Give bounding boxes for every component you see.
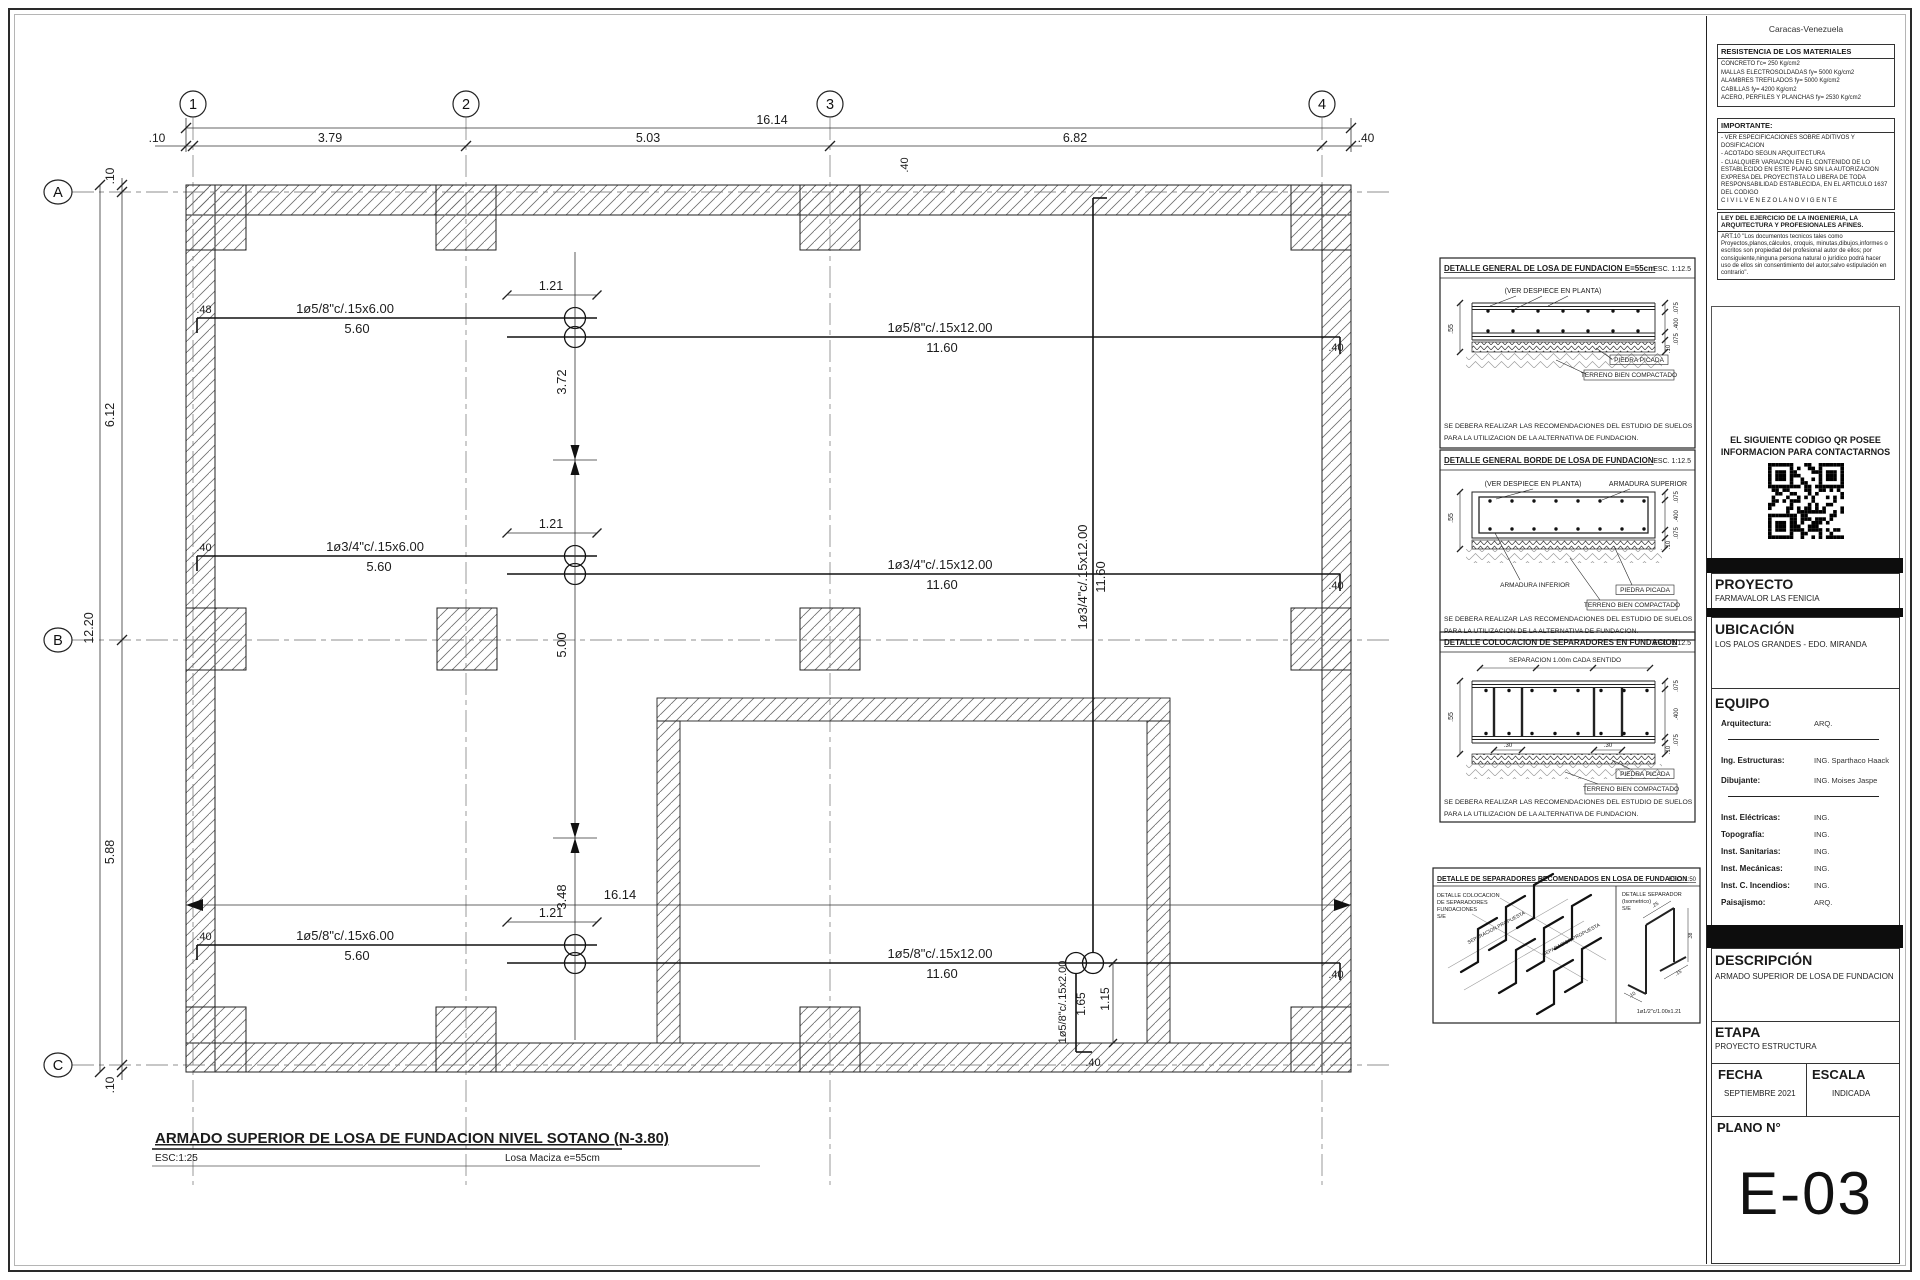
grid-bubble-label: 3 — [826, 97, 834, 113]
dim-label: .10 — [1628, 991, 1637, 1000]
importante-lines: - VER ESPECIFICACIONES SOBRE ADITIVOS Y … — [1718, 133, 1894, 209]
floor-plan-drawing: 1234ABC ARMADO SUPERIOR DE LOSA DE FUNDA… — [0, 0, 1920, 1280]
dim-label: 1.21 — [539, 279, 563, 293]
title-block: Caracas-Venezuela RESISTENCIA DE LOS MAT… — [1706, 16, 1905, 1264]
dim-label: .48 — [196, 304, 211, 316]
proyecto-label: PROYECTO — [1715, 576, 1902, 592]
importante-box: IMPORTANTE: - VER ESPECIFICACIONES SOBRE… — [1717, 118, 1895, 210]
fecha-escala-divider — [1806, 1064, 1807, 1117]
equipo-row-value: ING. — [1814, 847, 1829, 856]
dim-label: .15 — [1674, 969, 1683, 978]
equipo-row-label: Paisajismo: — [1721, 898, 1765, 907]
rebar-callout: 1ø5/8"c/.15x12.00 — [887, 946, 992, 961]
qr-caption-2: INFORMACION PARA CONTACTARNOS — [1712, 447, 1899, 457]
equipo-row-value: ING. — [1814, 813, 1829, 822]
descripcion-value: ARMADO SUPERIOR DE LOSA DE FUNDACION — [1715, 972, 1902, 981]
detail-scale: ESC. 1:12.5 — [1653, 266, 1691, 273]
fecha-escala-box: FECHA SEPTIEMBRE 2021 ESCALA INDICADA — [1711, 1063, 1900, 1118]
detail-title: DETALLE DE SEPARADORES RECOMENDADOS EN L… — [1437, 876, 1687, 883]
escala-value: INDICADA — [1832, 1089, 1870, 1098]
plano-label: PLANO N° — [1717, 1120, 1781, 1135]
equipo-row-label: Topografía: — [1721, 830, 1764, 839]
dim-label: .40 — [1358, 131, 1375, 145]
detail-label: FUNDACIONES — [1437, 907, 1477, 913]
title-block-city: Caracas-Venezuela — [1707, 24, 1905, 34]
text-line: C I V I L V E N E Z O L A N O V I G E N … — [1721, 198, 1891, 206]
rebar-callout: 1ø3/4"c/.15x12.00 — [1075, 524, 1090, 629]
rebar-callout: 5.60 — [366, 559, 391, 574]
dim-label: .40 — [1328, 580, 1343, 592]
dim-label: .075 — [1674, 734, 1680, 746]
grid-bubble-label: A — [53, 185, 63, 201]
detail-label: TERRENO BIEN COMPACTADO — [1583, 786, 1679, 793]
text-line: ACERO, PERFILES Y PLANCHAS fy= 2530 Kg/c… — [1721, 95, 1891, 103]
ley-header: LEY DEL EJERCICIO DE LA INGENIERIA, LA A… — [1718, 213, 1894, 232]
dim-label: 1.15 — [1098, 987, 1112, 1011]
divider-bar — [1707, 925, 1903, 948]
plan-title: ARMADO SUPERIOR DE LOSA DE FUNDACION NIV… — [155, 1130, 669, 1147]
drawing-sheet: 1234ABC ARMADO SUPERIOR DE LOSA DE FUNDA… — [0, 0, 1920, 1280]
detail-label: PIEDRA PICADA — [1620, 771, 1671, 778]
grid-bubble-label: 2 — [462, 97, 470, 113]
detail-label: ARMADURA SUPERIOR — [1609, 481, 1687, 488]
plan-slab-note: Losa Maciza e=55cm — [505, 1153, 600, 1164]
qr-code — [1768, 463, 1844, 539]
ley-box: LEY DEL EJERCICIO DE LA INGENIERIA, LA A… — [1717, 212, 1895, 280]
escala-label: ESCALA — [1812, 1067, 1865, 1082]
grid-bubble-label: 1 — [189, 97, 197, 113]
detail-label: S/E — [1437, 914, 1446, 920]
dim-label: 3.48 — [554, 884, 569, 909]
materials-header: RESISTENCIA DE LOS MATERIALES — [1718, 45, 1894, 59]
equipo-row-label: Arquitectura: — [1721, 719, 1771, 728]
equipo-box: EQUIPO Arquitectura:ARQ.Ing. Estructuras… — [1711, 688, 1900, 927]
dim-label: .55 — [1448, 712, 1455, 722]
detail-note: PARA LA UTILIZACION DE LA ALTERNATIVA DE… — [1444, 811, 1638, 818]
dim-label: 16.14 — [604, 887, 637, 902]
equipo-row-label: Inst. Mecánicas: — [1721, 864, 1783, 873]
detail-scale: ESC. 1:12.5 — [1653, 458, 1691, 465]
rebar-callout: 1ø5/8"c/.15x6.00 — [296, 301, 394, 316]
rebar-callout: 1ø5/8"c/.15x12.00 — [887, 320, 992, 335]
dim-label: 5.03 — [636, 131, 660, 145]
equipo-rule — [1728, 796, 1879, 797]
ubicacion-box: UBICACIÓN LOS PALOS GRANDES - EDO. MIRAN… — [1711, 617, 1900, 690]
dim-label: 12.20 — [82, 612, 96, 643]
detail-losa-fundacion — [1440, 258, 1695, 448]
grid-bubble-label: 4 — [1318, 97, 1326, 113]
rebar-callout: 11.60 — [926, 577, 958, 592]
descripcion-box: DESCRIPCIÓN ARMADO SUPERIOR DE LOSA DE F… — [1711, 948, 1900, 1023]
detail-label: TERRENO BIEN COMPACTADO — [1584, 602, 1680, 609]
dim-label: .075 — [1674, 491, 1680, 503]
dim-label: .400 — [1674, 708, 1680, 720]
proyecto-box: PROYECTO FARMAVALOR LAS FENICIA — [1711, 573, 1900, 610]
detail-label: SEPARACION 1.00m CADA SENTIDO — [1509, 657, 1621, 664]
detail-note: PARA LA UTILIZACION DE LA ALTERNATIVA DE… — [1444, 628, 1638, 635]
equipo-label: EQUIPO — [1715, 695, 1902, 711]
equipo-rule — [1728, 739, 1879, 740]
dim-label: 1.65 — [1074, 992, 1088, 1016]
dim-label: .10 — [149, 131, 166, 145]
drawing-labels: ARMADO SUPERIOR DE LOSA DE FUNDACION NIV… — [82, 113, 1697, 1164]
plano-box: PLANO N° E-03 — [1711, 1116, 1900, 1264]
grid-bubble-label: B — [53, 633, 63, 649]
text-line: CONCRETO f'c= 250 Kg/cm2 — [1721, 61, 1891, 69]
rebar-callout: 1ø5/8"c/.15x2.00 — [1057, 961, 1069, 1044]
detail-note: SE DEBERA REALIZAR LAS RECOMENDACIONES D… — [1444, 423, 1693, 430]
detail-label: PIEDRA PICADA — [1614, 357, 1665, 364]
dim-label: .40 — [196, 931, 211, 943]
dim-label: .30 — [1504, 743, 1513, 749]
detail-scale: ESC. 1:12.5 — [1653, 640, 1691, 647]
detail-label: S/E — [1622, 906, 1631, 912]
detail-label: PIEDRA PICADA — [1620, 587, 1671, 594]
plan-scale: ESC:1:25 — [155, 1153, 198, 1164]
dim-label: .40 — [196, 542, 211, 554]
detail-label: TERRENO BIEN COMPACTADO — [1581, 372, 1677, 379]
equipo-row-label: Ing. Estructuras: — [1721, 756, 1785, 765]
detail-label: DETALLE COLOCACION — [1437, 893, 1500, 899]
dim-label: .10 — [1666, 540, 1672, 549]
dim-label: .10 — [1666, 745, 1672, 754]
qr-caption-1: EL SIGUIENTE CODIGO QR POSEE — [1712, 435, 1899, 445]
equipo-row-value: ING. — [1814, 830, 1829, 839]
rebar-callout: 11.60 — [926, 340, 958, 355]
rebar-callout: 5.60 — [344, 948, 369, 963]
dim-label: 5.00 — [554, 632, 569, 657]
rebar-callout: 11.60 — [926, 966, 958, 981]
detail-note: SE DEBERA REALIZAR LAS RECOMENDACIONES D… — [1444, 799, 1693, 806]
detail-label: DETALLE SEPARADOR — [1622, 892, 1682, 898]
dim-label: 16.14 — [756, 113, 787, 127]
dim-label: 5.88 — [103, 840, 117, 864]
detail-note: SE DEBERA REALIZAR LAS RECOMENDACIONES D… — [1444, 616, 1693, 623]
equipo-row-label: Inst. C. Incendios: — [1721, 881, 1790, 890]
dim-label: 1.21 — [539, 517, 563, 531]
ubicacion-value: LOS PALOS GRANDES - EDO. MIRANDA — [1715, 640, 1902, 649]
equipo-row-value: ING. — [1814, 864, 1829, 873]
equipo-row-label: Inst. Sanitarias: — [1721, 847, 1781, 856]
detail-title: DETALLE GENERAL DE LOSA DE FUNDACION E=5… — [1444, 264, 1655, 273]
etapa-label: ETAPA — [1715, 1024, 1902, 1040]
rebar-callout: 11.60 — [1093, 561, 1108, 593]
text-line: CABILLAS fy= 4200 Kg/cm2 — [1721, 87, 1891, 95]
dim-label: .40 — [1328, 342, 1343, 354]
text-line: ALAMBRES TREFILADOS fy= 5000 Kg/cm2 — [1721, 78, 1891, 86]
equipo-row-label: Inst. Eléctricas: — [1721, 813, 1780, 822]
rebar-callout: 1ø3/4"c/.15x6.00 — [326, 539, 424, 554]
equipo-row-value: ARQ. — [1814, 719, 1832, 728]
rebar-callout: 5.60 — [344, 321, 369, 336]
dim-label: .40 — [1085, 1057, 1100, 1069]
dim-label: .55 — [1448, 324, 1455, 334]
equipo-row-value: ING. Sparthaco Haack — [1814, 756, 1889, 765]
text-line: - ACOTADO SEGUN ARQUITECTURA — [1721, 151, 1891, 159]
equipo-row-value: ARQ. — [1814, 898, 1832, 907]
dim-label: .10 — [1666, 344, 1672, 353]
etapa-box: ETAPA PROYECTO ESTRUCTURA — [1711, 1021, 1900, 1065]
dim-label: .400 — [1674, 510, 1680, 522]
dim-label: .10 — [103, 167, 117, 184]
dim-label: .075 — [1674, 680, 1680, 692]
text-line: - VER ESPECIFICACIONES SOBRE ADITIVOS Y … — [1721, 135, 1891, 150]
equipo-row-value: ING. Moises Jaspe — [1814, 776, 1877, 785]
dim-label: .38 — [1688, 932, 1694, 939]
detail-label: (VER DESPIECE EN PLANTA) — [1485, 481, 1582, 488]
detail-title: DETALLE GENERAL BORDE DE LOSA DE FUNDACI… — [1444, 456, 1654, 465]
qr-box: EL SIGUIENTE CODIGO QR POSEE INFORMACION… — [1711, 306, 1900, 560]
descripcion-label: DESCRIPCIÓN — [1715, 952, 1902, 968]
detail-note: PARA LA UTILIZACION DE LA ALTERNATIVA DE… — [1444, 435, 1638, 442]
dim-label: 6.82 — [1063, 131, 1087, 145]
dim-label: .075 — [1674, 333, 1680, 345]
dim-label: .400 — [1674, 318, 1680, 330]
importante-header: IMPORTANTE: — [1718, 119, 1894, 133]
detail-label: 1ø1/2"c/1.00x1.21 — [1637, 1009, 1681, 1015]
plano-number: E-03 — [1712, 1159, 1899, 1228]
divider-bar — [1707, 558, 1903, 573]
dim-label: 3.79 — [318, 131, 342, 145]
text-line: - CUALQUIER VARIACION EN EL CONTENIDO DE… — [1721, 160, 1891, 198]
dim-label: .40 — [899, 157, 911, 172]
grid-bubble-label: C — [53, 1058, 63, 1074]
dim-label: .10 — [103, 1076, 117, 1093]
grid-lines — [72, 118, 1392, 1185]
detail-label: (VER DESPIECE EN PLANTA) — [1505, 288, 1602, 295]
dim-label: .30 — [1604, 743, 1613, 749]
dim-label: .075 — [1674, 527, 1680, 539]
materials-box: RESISTENCIA DE LOS MATERIALES CONCRETO f… — [1717, 44, 1895, 107]
detail-title: DETALLE COLOCACION DE SEPARADORES EN FUN… — [1444, 638, 1678, 647]
dim-label: .55 — [1448, 513, 1455, 523]
materials-lines: CONCRETO f'c= 250 Kg/cm2MALLAS ELECTROSO… — [1718, 59, 1894, 106]
detail-label: (Isometrico) — [1622, 899, 1651, 905]
etapa-value: PROYECTO ESTRUCTURA — [1715, 1042, 1902, 1051]
dim-label: .075 — [1674, 302, 1680, 314]
dim-label: .40 — [1328, 969, 1343, 981]
detail-label: DE SEPARADORES — [1437, 900, 1488, 906]
dimension-lines — [100, 118, 1362, 1080]
equipo-row-label: Dibujante: — [1721, 776, 1760, 785]
ubicacion-label: UBICACIÓN — [1715, 621, 1902, 637]
fecha-value: SEPTIEMBRE 2021 — [1724, 1089, 1796, 1098]
text-line: MALLAS ELECTROSOLDADAS fy= 5000 Kg/cm2 — [1721, 70, 1891, 78]
divider-bar-thin — [1707, 608, 1903, 617]
detail-label: ARMADURA INFERIOR — [1500, 582, 1570, 589]
equipo-row-value: ING. — [1814, 881, 1829, 890]
ley-body: ART.10 "Los documentos tecnicos tales co… — [1718, 232, 1894, 279]
fecha-label: FECHA — [1718, 1067, 1763, 1082]
dimension-arrows — [186, 445, 1351, 911]
rebar-callout: 1ø5/8"c/.15x6.00 — [296, 928, 394, 943]
rebar-callout: 1ø3/4"c/.15x12.00 — [887, 557, 992, 572]
proyecto-value: FARMAVALOR LAS FENICIA — [1715, 594, 1902, 603]
dim-label: 6.12 — [103, 403, 117, 427]
detail-borde-losa — [1440, 450, 1695, 640]
detail-scale: ESC. 1:50 — [1669, 877, 1697, 883]
dim-label: 3.72 — [554, 369, 569, 394]
